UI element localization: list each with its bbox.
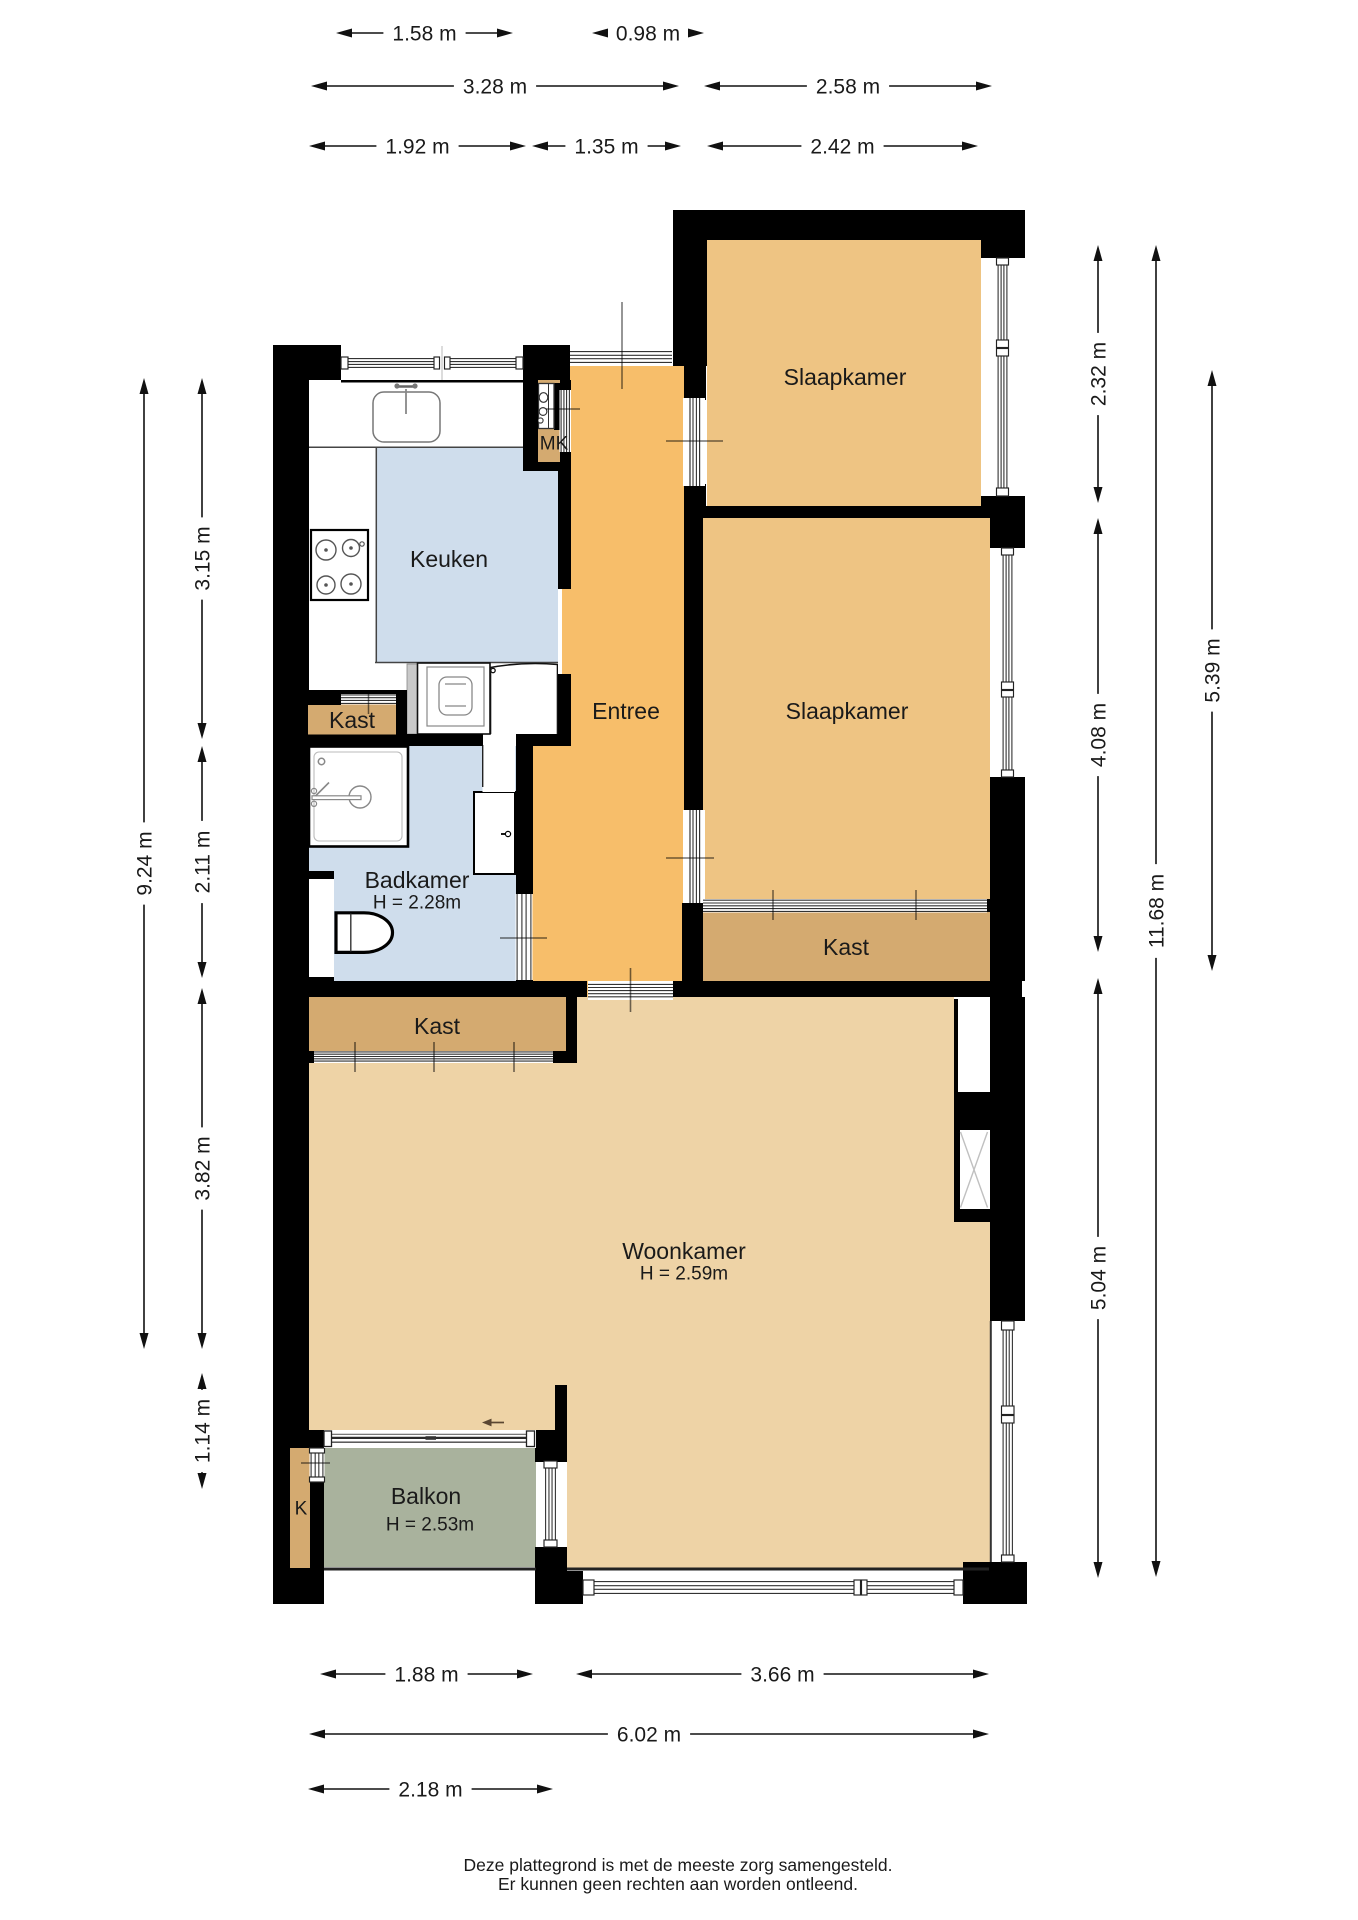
svg-text:Keuken: Keuken [410, 546, 488, 572]
svg-text:11.68 m: 11.68 m [1146, 874, 1169, 948]
svg-text:Deze plattegrond is met de mee: Deze plattegrond is met de meeste zorg s… [464, 1855, 893, 1875]
svg-text:3.82 m: 3.82 m [192, 1136, 215, 1200]
svg-text:1.14 m: 1.14 m [192, 1399, 215, 1463]
svg-text:Kast: Kast [414, 1013, 461, 1039]
svg-text:Balkon: Balkon [391, 1483, 461, 1509]
svg-text:4.08 m: 4.08 m [1088, 703, 1111, 767]
svg-text:3.28 m: 3.28 m [463, 76, 527, 99]
svg-text:2.11 m: 2.11 m [192, 831, 215, 894]
svg-text:3.66 m: 3.66 m [750, 1664, 814, 1687]
svg-text:2.58 m: 2.58 m [816, 76, 880, 99]
svg-text:H = 2.28m: H = 2.28m [373, 893, 461, 914]
svg-text:6.02 m: 6.02 m [617, 1724, 681, 1747]
svg-text:Slaapkamer: Slaapkamer [786, 698, 909, 724]
svg-text:3.15 m: 3.15 m [192, 526, 215, 590]
svg-text:Woonkamer: Woonkamer [622, 1238, 746, 1264]
svg-text:5.39 m: 5.39 m [1202, 638, 1225, 702]
svg-text:Slaapkamer: Slaapkamer [784, 364, 907, 390]
svg-text:Entree: Entree [592, 698, 660, 724]
svg-text:1.58 m: 1.58 m [392, 23, 456, 46]
svg-text:Er kunnen geen rechten aan wor: Er kunnen geen rechten aan worden ontlee… [498, 1874, 858, 1894]
svg-text:1.35 m: 1.35 m [574, 136, 638, 159]
svg-text:Badkamer: Badkamer [365, 867, 470, 893]
svg-text:Kast: Kast [329, 707, 376, 733]
svg-text:2.18 m: 2.18 m [398, 1779, 462, 1802]
svg-text:0.98 m: 0.98 m [616, 23, 680, 46]
svg-text:H = 2.59m: H = 2.59m [640, 1264, 728, 1285]
svg-text:1.92 m: 1.92 m [385, 136, 449, 159]
svg-text:5.04 m: 5.04 m [1088, 1246, 1111, 1310]
svg-text:2.32 m: 2.32 m [1088, 342, 1111, 406]
svg-text:Kast: Kast [823, 934, 870, 960]
svg-text:1.88 m: 1.88 m [394, 1664, 458, 1687]
svg-text:K: K [295, 1499, 308, 1520]
svg-text:H = 2.53m: H = 2.53m [386, 1515, 474, 1536]
svg-text:MK: MK [540, 434, 569, 455]
svg-text:2.42 m: 2.42 m [810, 136, 874, 159]
svg-text:9.24 m: 9.24 m [134, 831, 157, 895]
